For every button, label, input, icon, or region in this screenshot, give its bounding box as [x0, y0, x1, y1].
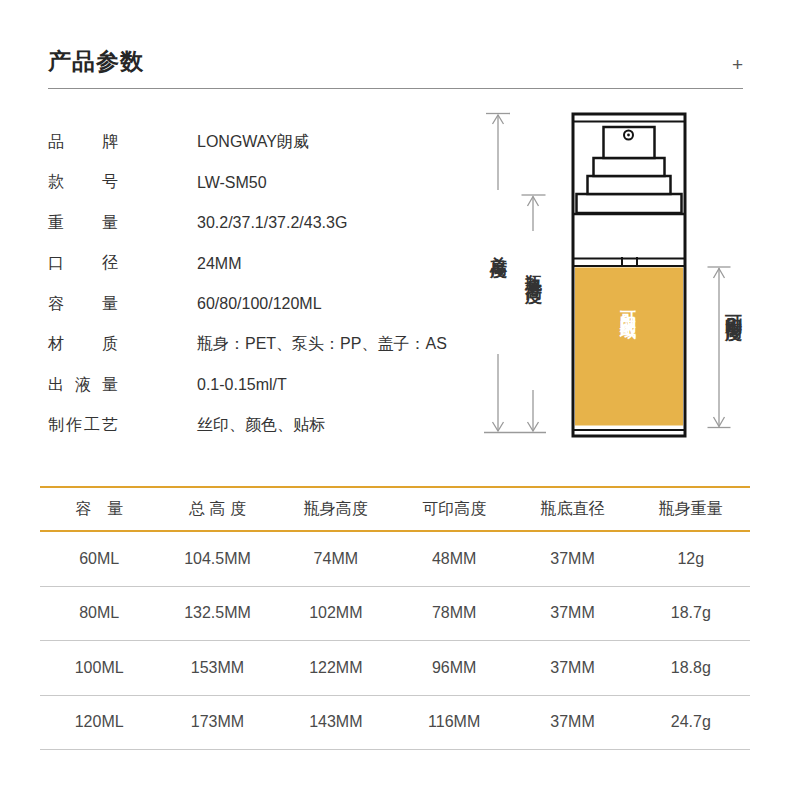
table-row: 60ML 104.5MM 74MM 48MM 37MM 12g — [40, 532, 750, 587]
cell-total-height: 104.5MM — [158, 550, 276, 568]
cell-capacity: 60ML — [40, 550, 158, 568]
spec-value: 60/80/100/120ML — [197, 295, 322, 313]
spec-row-brand: 品牌 LONGWAY朗威 — [48, 122, 478, 163]
cell-body-height: 122MM — [277, 659, 395, 677]
spec-value: 0.1-0.15ml/T — [197, 376, 287, 394]
cell-print-height: 78MM — [395, 604, 513, 622]
spec-list: 品牌 LONGWAY朗威 款号 LW-SM50 重量 30.2/37.1/37.… — [48, 122, 478, 446]
cell-bottom-diameter: 37MM — [513, 713, 631, 731]
printable-height-label: 可印刷高度 — [723, 301, 743, 311]
spec-value: 瓶身：PET、泵头：PP、盖子：AS — [197, 334, 447, 355]
col-header-bottom-diameter: 瓶底直径 — [513, 499, 631, 520]
col-header-print-height: 可印高度 — [395, 499, 513, 520]
col-header-body-height: 瓶身高度 — [277, 499, 395, 520]
spec-value: LONGWAY朗威 — [197, 132, 309, 153]
col-header-total-height: 总 高 度 — [158, 499, 276, 520]
plus-icon[interactable]: + — [732, 55, 743, 74]
spec-value: LW-SM50 — [197, 174, 267, 192]
bottle-diagram-svg — [470, 100, 790, 450]
col-header-capacity: 容 量 — [40, 499, 158, 520]
spec-label: 容量 — [48, 294, 118, 315]
bottle-diagram: 总高度 瓶身高度 可印刷区域 可印刷高度 — [470, 100, 790, 450]
spec-row-capacity: 容量 60/80/100/120ML — [48, 284, 478, 325]
cell-bottom-diameter: 37MM — [513, 550, 631, 568]
cell-body-height: 143MM — [277, 713, 395, 731]
product-parameters-page: 产品参数 + 品牌 LONGWAY朗威 款号 LW-SM50 重量 30.2/3… — [0, 0, 790, 812]
spec-label: 口径 — [48, 253, 118, 274]
cell-body-weight: 24.7g — [632, 713, 750, 731]
spec-label: 重量 — [48, 213, 118, 234]
cell-total-height: 132.5MM — [158, 604, 276, 622]
spec-label: 款号 — [48, 172, 118, 193]
spec-label: 出液量 — [48, 375, 118, 396]
body-height-arrow — [522, 195, 546, 431]
body-height-label: 瓶身高度 — [523, 260, 543, 276]
cell-capacity: 120ML — [40, 713, 158, 731]
cell-body-weight: 18.8g — [632, 659, 750, 677]
cell-body-height: 102MM — [277, 604, 395, 622]
cell-body-weight: 12g — [632, 550, 750, 568]
printable-area-label: 可印刷区域 — [618, 298, 637, 313]
spec-value: 丝印、颜色、贴标 — [197, 415, 325, 436]
spec-row-material: 材质 瓶身：PET、泵头：PP、盖子：AS — [48, 325, 478, 366]
cell-capacity: 100ML — [40, 659, 158, 677]
cell-capacity: 80ML — [40, 604, 158, 622]
cell-bottom-diameter: 37MM — [513, 659, 631, 677]
cell-bottom-diameter: 37MM — [513, 604, 631, 622]
table-header-row: 容 量 总 高 度 瓶身高度 可印高度 瓶底直径 瓶身重量 — [40, 486, 750, 532]
spec-row-model: 款号 LW-SM50 — [48, 163, 478, 204]
spec-value: 24MM — [197, 255, 241, 273]
cell-total-height: 173MM — [158, 713, 276, 731]
printable-height-arrow — [708, 267, 731, 428]
col-header-body-weight: 瓶身重量 — [632, 499, 750, 520]
cell-body-weight: 18.7g — [632, 604, 750, 622]
pump-head — [577, 127, 682, 213]
spec-label: 品牌 — [48, 132, 118, 153]
section-header: 产品参数 + — [48, 46, 743, 89]
total-height-label: 总高度 — [488, 242, 508, 248]
table-row: 120ML 173MM 143MM 116MM 37MM 24.7g — [40, 696, 750, 751]
spec-row-craft: 制作工艺 丝印、颜色、贴标 — [48, 406, 478, 447]
spec-label: 材质 — [48, 334, 118, 355]
table-row: 80ML 132.5MM 102MM 78MM 37MM 18.7g — [40, 587, 750, 642]
cell-total-height: 153MM — [158, 659, 276, 677]
spec-value: 30.2/37.1/37.2/43.3G — [197, 214, 347, 232]
cell-print-height: 96MM — [395, 659, 513, 677]
spec-row-output: 出液量 0.1-0.15ml/T — [48, 365, 478, 406]
spec-row-weight: 重量 30.2/37.1/37.2/43.3G — [48, 203, 478, 244]
table-row: 100ML 153MM 122MM 96MM 37MM 18.8g — [40, 641, 750, 696]
cell-print-height: 48MM — [395, 550, 513, 568]
spec-label: 制作工艺 — [48, 415, 118, 436]
cell-body-height: 74MM — [277, 550, 395, 568]
cell-print-height: 116MM — [395, 713, 513, 731]
printable-area — [575, 268, 683, 426]
page-title: 产品参数 — [48, 46, 144, 77]
size-table: 容 量 总 高 度 瓶身高度 可印高度 瓶底直径 瓶身重量 60ML 104.5… — [40, 486, 750, 750]
spec-row-caliber: 口径 24MM — [48, 244, 478, 285]
